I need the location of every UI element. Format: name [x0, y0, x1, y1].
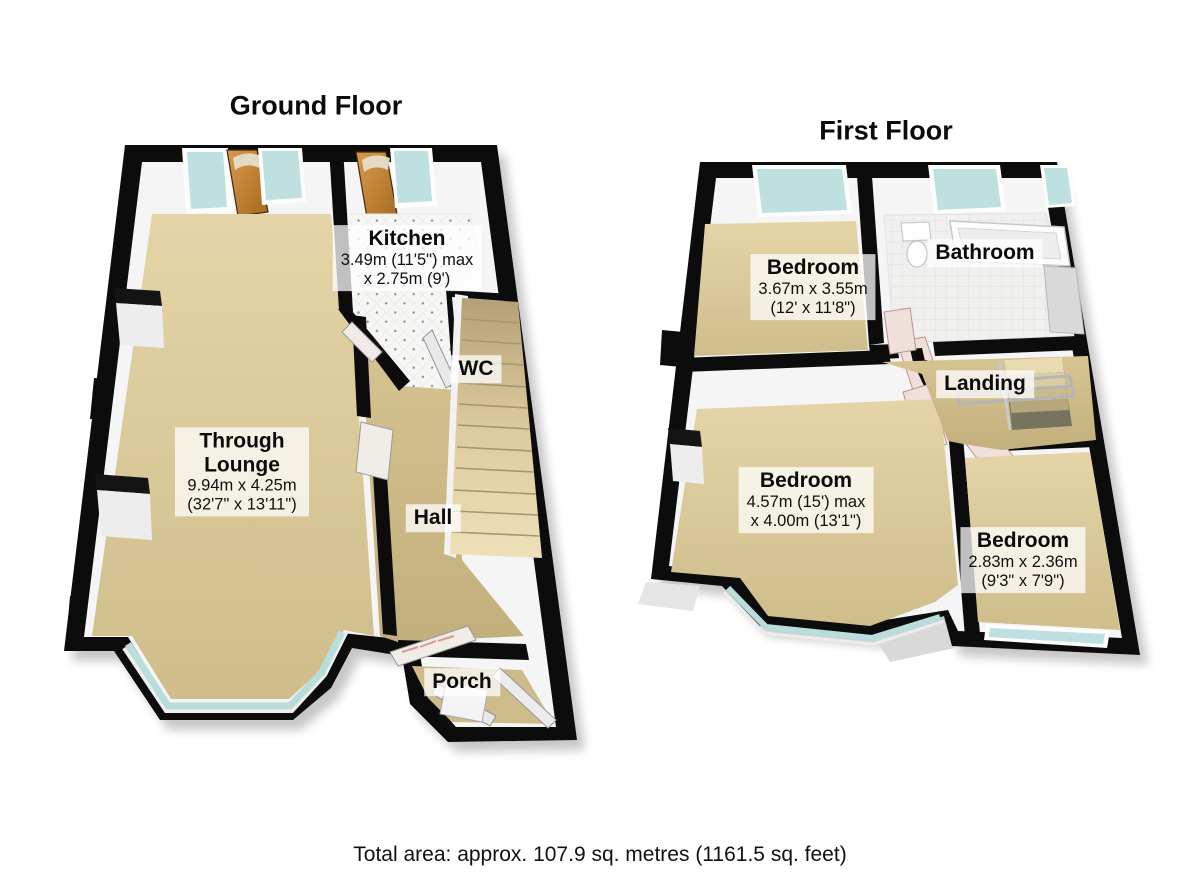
porch-label: Porch — [424, 668, 500, 696]
lounge-chimney-breast-lower — [95, 474, 152, 540]
wc-name: WC — [459, 357, 494, 381]
bathroom-window-right — [1040, 165, 1076, 208]
kitchen-dimensions-line1: 3.49m (11'5") max — [341, 251, 474, 270]
ground-floor-title: Ground Floor — [230, 91, 402, 122]
wc-label: WC — [451, 355, 502, 383]
kitchen-window — [390, 148, 437, 208]
kitchen-dimensions-line2: x 2.75m (9') — [341, 270, 474, 289]
landing-name: Landing — [944, 372, 1026, 396]
bedroom-front-dimensions-line1: 3.67m x 3.55m — [758, 280, 867, 299]
lounge-hall-door — [356, 422, 393, 480]
bedroom-front-dimensions-line2: (12' x 11'8") — [758, 299, 867, 318]
bedroom-rear-dimensions-line2: (9'3" x 7'9") — [968, 572, 1077, 591]
floorplan-page: Ground Floor First Floor Kitchen 3.49m (… — [0, 0, 1200, 873]
through-lounge-dimensions-line2: (32'7" x 13'11") — [183, 496, 301, 515]
through-lounge-dimensions-line1: 9.94m x 4.25m — [183, 476, 301, 495]
landing-label: Landing — [936, 370, 1034, 398]
bedroom-main-name: Bedroom — [747, 469, 866, 493]
kitchen-name: Kitchen — [341, 227, 474, 251]
lower-roof-slope-left — [638, 582, 700, 611]
total-area-text: Total area: approx. 107.9 sq. metres (11… — [0, 843, 1200, 867]
lounge-window-right — [258, 148, 306, 205]
bedroom-rear-name: Bedroom — [968, 529, 1077, 553]
bedroom-main-chimney-breast — [668, 428, 704, 484]
bedroom-main-dimensions-line2: x 4.00m (13'1") — [747, 512, 866, 531]
bathroom-name: Bathroom — [935, 241, 1034, 265]
bathroom-label: Bathroom — [927, 239, 1042, 267]
hall-label: Hall — [406, 504, 461, 532]
bedroom-rear-dimensions-line1: 2.83m x 2.36m — [968, 553, 1077, 572]
bathroom-window-left — [928, 165, 1006, 214]
porch-name: Porch — [432, 670, 492, 694]
through-lounge-label: Through Lounge 9.94m x 4.25m (32'7" x 13… — [175, 427, 309, 516]
bedroom-main-label: Bedroom 4.57m (15') max x 4.00m (13'1") — [739, 467, 874, 533]
through-lounge-name: Through Lounge — [183, 429, 301, 476]
kitchen-label: Kitchen 3.49m (11'5") max x 2.75m (9') — [333, 225, 482, 291]
bedroom-front-window — [752, 165, 852, 217]
ground-floor-plan — [64, 145, 585, 752]
first-floor-title: First Floor — [819, 116, 953, 147]
bedroom-main-dimensions-line1: 4.57m (15') max — [747, 493, 866, 512]
bedroom-front-label: Bedroom 3.67m x 3.55m (12' x 11'8") — [750, 254, 875, 320]
bedroom-rear-label: Bedroom 2.83m x 2.36m (9'3" x 7'9") — [960, 527, 1085, 593]
lounge-chimney-breast-upper — [114, 288, 164, 348]
lounge-window-left — [182, 148, 233, 214]
bedroom-front-door — [884, 308, 916, 354]
hall-name: Hall — [414, 506, 453, 530]
bedroom-front-name: Bedroom — [758, 256, 867, 280]
